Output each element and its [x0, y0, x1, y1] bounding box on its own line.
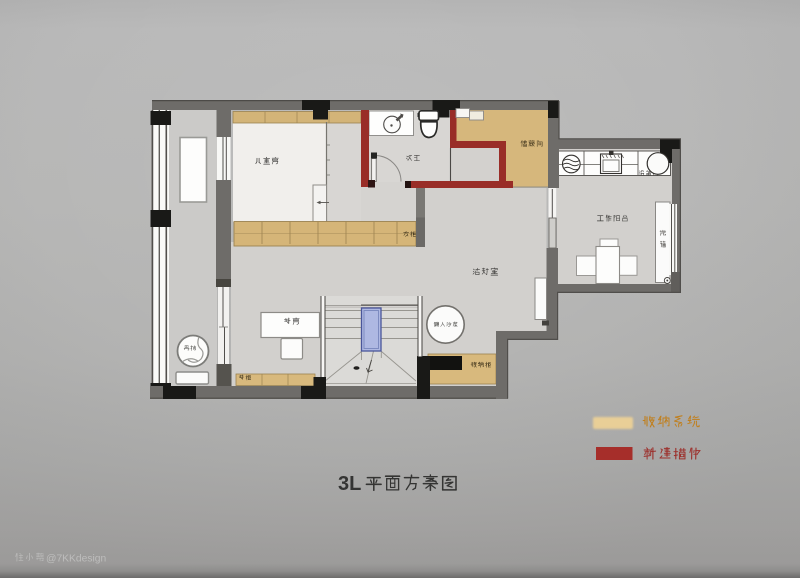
svg-text:3L: 3L [338, 473, 361, 495]
svg-text:@7KKdesign: @7KKdesign [46, 554, 107, 565]
